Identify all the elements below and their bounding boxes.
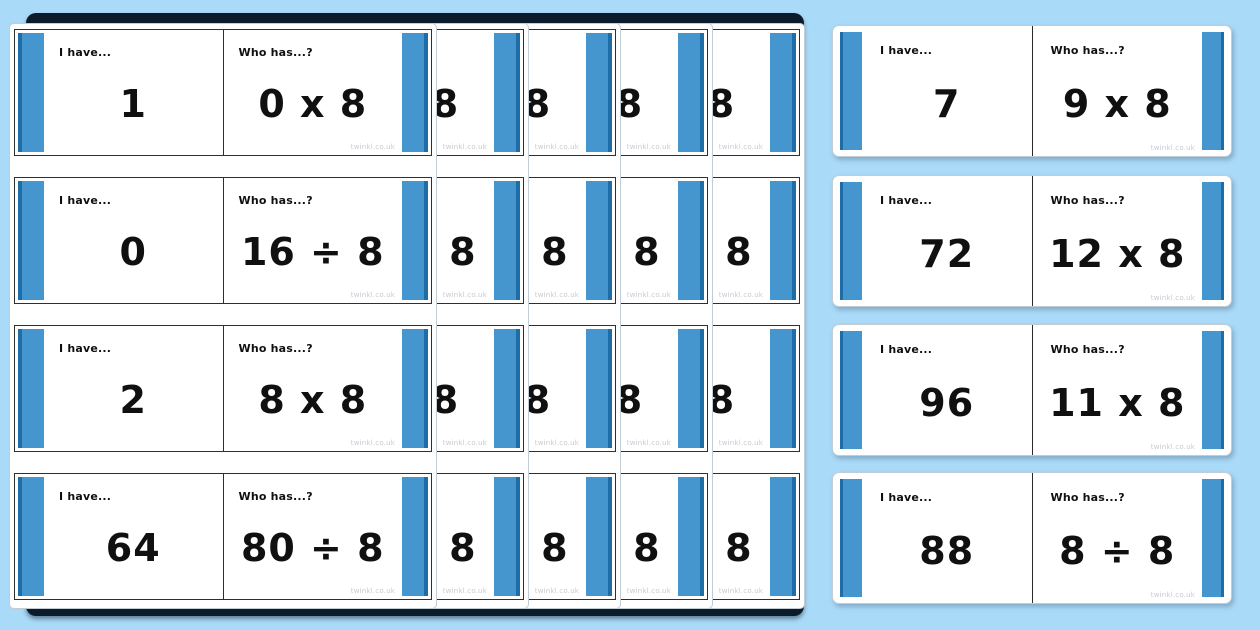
card-right-blue-bar (678, 181, 704, 300)
card-right-blue-bar (1202, 182, 1224, 300)
loop-card: I have... 96 Who has...? 11 x 8 twinkl.c… (833, 325, 1231, 455)
i-have-value: 72 (862, 232, 1032, 276)
who-has-value: 80 ÷ 8 (224, 526, 403, 570)
who-has-half: Who has...? 16 ÷ 8 twinkl.co.uk (223, 178, 403, 303)
right-card-page: I have... 88 Who has...? 8 ÷ 8 twinkl.co… (832, 472, 1232, 604)
twinkl-watermark: twinkl.co.uk (1151, 144, 1195, 152)
i-have-half: I have... 64 (44, 474, 223, 599)
loop-card: I have... 7 Who has...? 9 x 8 twinkl.co.… (833, 26, 1231, 156)
card-left-blue-bar (18, 33, 44, 152)
card-right-blue-bar (586, 181, 612, 300)
who-has-value: 9 x 8 (1033, 82, 1203, 126)
who-has-label: Who has...? (239, 342, 313, 355)
loop-card: I have... 0 Who has...? 16 ÷ 8 twinkl.co… (14, 177, 432, 304)
twinkl-watermark: twinkl.co.uk (1151, 591, 1195, 599)
twinkl-watermark: twinkl.co.uk (627, 439, 671, 447)
who-has-value: 0 x 8 (224, 82, 403, 126)
loop-card: I have... 2 Who has...? 8 x 8 twinkl.co.… (14, 325, 432, 452)
right-card-page: I have... 72 Who has...? 12 x 8 twinkl.c… (832, 175, 1232, 307)
twinkl-watermark: twinkl.co.uk (351, 439, 395, 447)
card-left-blue-bar (18, 477, 44, 596)
right-card-page: I have... 96 Who has...? 11 x 8 twinkl.c… (832, 324, 1232, 456)
twinkl-watermark: twinkl.co.uk (1151, 294, 1195, 302)
card-right-blue-bar (494, 477, 520, 596)
who-has-label: Who has...? (239, 490, 313, 503)
card-right-blue-bar (770, 477, 796, 596)
i-have-label: I have... (880, 343, 932, 356)
i-have-half: I have... 72 (862, 176, 1032, 306)
twinkl-watermark: twinkl.co.uk (535, 143, 579, 151)
i-have-half: I have... 88 (862, 473, 1032, 603)
card-left-blue-bar (840, 479, 862, 597)
who-has-value: 16 ÷ 8 (224, 230, 403, 274)
twinkl-watermark: twinkl.co.uk (535, 587, 579, 595)
right-card-page: I have... 7 Who has...? 9 x 8 twinkl.co.… (832, 25, 1232, 157)
card-right-blue-bar (494, 33, 520, 152)
i-have-label: I have... (880, 491, 932, 504)
i-have-label: I have... (59, 490, 111, 503)
loop-card: I have... 64 Who has...? 80 ÷ 8 twinkl.c… (14, 473, 432, 600)
twinkl-watermark: twinkl.co.uk (627, 143, 671, 151)
i-have-value: 2 (44, 378, 223, 422)
card-right-blue-bar (770, 329, 796, 448)
twinkl-watermark: twinkl.co.uk (443, 587, 487, 595)
card-right-blue-bar (402, 329, 428, 448)
who-has-value: 11 x 8 (1033, 381, 1203, 425)
i-have-value: 64 (44, 526, 223, 570)
who-has-value: 12 x 8 (1033, 232, 1203, 276)
card-right-blue-bar (494, 329, 520, 448)
who-has-half: Who has...? 9 x 8 twinkl.co.uk (1032, 26, 1203, 156)
twinkl-watermark: twinkl.co.uk (443, 143, 487, 151)
twinkl-watermark: twinkl.co.uk (627, 291, 671, 299)
who-has-label: Who has...? (1051, 491, 1125, 504)
i-have-value: 0 (44, 230, 223, 274)
card-right-blue-bar (770, 33, 796, 152)
twinkl-watermark: twinkl.co.uk (719, 291, 763, 299)
who-has-value: 8 ÷ 8 (1033, 529, 1203, 573)
i-have-value: 7 (862, 82, 1032, 126)
card-right-blue-bar (678, 477, 704, 596)
card-right-blue-bar (494, 181, 520, 300)
card-left-blue-bar (840, 32, 862, 150)
card-right-blue-bar (1202, 32, 1224, 150)
card-right-blue-bar (402, 33, 428, 152)
twinkl-watermark: twinkl.co.uk (1151, 443, 1195, 451)
who-has-label: Who has...? (239, 46, 313, 59)
i-have-value: 1 (44, 82, 223, 126)
twinkl-watermark: twinkl.co.uk (719, 439, 763, 447)
card-right-blue-bar (1202, 479, 1224, 597)
i-have-label: I have... (59, 342, 111, 355)
twinkl-watermark: twinkl.co.uk (443, 291, 487, 299)
i-have-half: I have... 96 (862, 325, 1032, 455)
loop-card: I have... 72 Who has...? 12 x 8 twinkl.c… (833, 176, 1231, 306)
who-has-label: Who has...? (1051, 44, 1125, 57)
card-right-blue-bar (402, 181, 428, 300)
who-has-half: Who has...? 8 ÷ 8 twinkl.co.uk (1032, 473, 1203, 603)
i-have-half: I have... 7 (862, 26, 1032, 156)
who-has-half: Who has...? 80 ÷ 8 twinkl.co.uk (223, 474, 403, 599)
loop-card: I have... 88 Who has...? 8 ÷ 8 twinkl.co… (833, 473, 1231, 603)
twinkl-watermark: twinkl.co.uk (351, 143, 395, 151)
i-have-value: 88 (862, 529, 1032, 573)
twinkl-watermark: twinkl.co.uk (351, 587, 395, 595)
twinkl-watermark: twinkl.co.uk (535, 291, 579, 299)
i-have-value: 96 (862, 381, 1032, 425)
card-right-blue-bar (1202, 331, 1224, 449)
loop-card: I have... 1 Who has...? 0 x 8 twinkl.co.… (14, 29, 432, 156)
who-has-half: Who has...? 12 x 8 twinkl.co.uk (1032, 176, 1203, 306)
card-right-blue-bar (402, 477, 428, 596)
card-right-blue-bar (586, 33, 612, 152)
card-right-blue-bar (770, 181, 796, 300)
front-page: I have... 1 Who has...? 0 x 8 twinkl.co.… (9, 23, 437, 609)
twinkl-watermark: twinkl.co.uk (719, 143, 763, 151)
i-have-label: I have... (59, 46, 111, 59)
who-has-label: Who has...? (239, 194, 313, 207)
i-have-half: I have... 1 (44, 30, 223, 155)
i-have-label: I have... (880, 194, 932, 207)
twinkl-watermark: twinkl.co.uk (535, 439, 579, 447)
card-right-blue-bar (586, 477, 612, 596)
card-left-blue-bar (18, 181, 44, 300)
who-has-value: 8 x 8 (224, 378, 403, 422)
twinkl-watermark: twinkl.co.uk (443, 439, 487, 447)
twinkl-watermark: twinkl.co.uk (351, 291, 395, 299)
card-left-blue-bar (18, 329, 44, 448)
who-has-label: Who has...? (1051, 343, 1125, 356)
i-have-half: I have... 0 (44, 178, 223, 303)
twinkl-watermark: twinkl.co.uk (627, 587, 671, 595)
who-has-half: Who has...? 11 x 8 twinkl.co.uk (1032, 325, 1203, 455)
who-has-half: Who has...? 8 x 8 twinkl.co.uk (223, 326, 403, 451)
twinkl-watermark: twinkl.co.uk (719, 587, 763, 595)
card-right-blue-bar (586, 329, 612, 448)
who-has-half: Who has...? 0 x 8 twinkl.co.uk (223, 30, 403, 155)
who-has-label: Who has...? (1051, 194, 1125, 207)
i-have-half: I have... 2 (44, 326, 223, 451)
card-right-blue-bar (678, 33, 704, 152)
i-have-label: I have... (880, 44, 932, 57)
card-left-blue-bar (840, 182, 862, 300)
card-left-blue-bar (840, 331, 862, 449)
card-right-blue-bar (678, 329, 704, 448)
i-have-label: I have... (59, 194, 111, 207)
